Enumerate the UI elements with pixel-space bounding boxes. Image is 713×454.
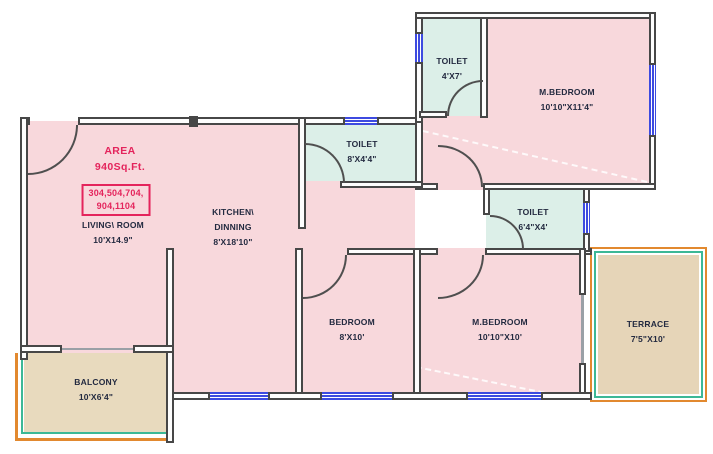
wall-segment: [133, 345, 174, 353]
wall-segment: [347, 248, 417, 255]
wall-segment: [268, 392, 322, 400]
window-marker: [210, 392, 268, 400]
room-name: KITCHEN\: [212, 205, 254, 220]
room-label-terrace: TERRACE 7'5"X10': [627, 317, 670, 347]
room-label-bedroom: BEDROOM 8'X10': [329, 315, 375, 345]
wall-segment: [483, 183, 656, 190]
room-dims: 8'X18'10": [212, 235, 254, 250]
balcony-rail-teal-bottom: [21, 432, 168, 434]
balcony-door-slider: [62, 348, 133, 350]
room-name: TOILET: [346, 137, 377, 152]
terrace-door-slider: [581, 295, 584, 363]
unit-numbers-line2: 904,1104: [89, 200, 144, 213]
wall-segment: [415, 12, 656, 19]
room-dims: 10'10"X10': [472, 330, 528, 345]
room-name: DINNING: [212, 220, 254, 235]
room-name: TOILET: [436, 54, 467, 69]
room-name: M.BEDROOM: [472, 315, 528, 330]
window-marker: [468, 392, 541, 400]
wall-segment: [419, 111, 447, 118]
room-dims: 10'X14.9": [82, 233, 144, 248]
balcony-rail-orange-bottom: [15, 438, 172, 441]
wall-segment: [541, 392, 592, 400]
column-marker: [189, 116, 198, 127]
room-name: BALCONY: [74, 375, 117, 390]
room-name: BEDROOM: [329, 315, 375, 330]
window-marker: [322, 392, 392, 400]
room-dims: 10'10"X11'4": [539, 100, 595, 115]
wall-segment: [649, 135, 656, 190]
room-label-mbedroom-top: M.BEDROOM 10'10"X11'4": [539, 85, 595, 115]
wall-segment: [20, 345, 62, 353]
wall-segment: [483, 188, 490, 215]
wall-segment: [340, 181, 423, 188]
room-name: LIVING\ ROOM: [82, 218, 144, 233]
room-dims: 10'X6'4": [74, 390, 117, 405]
wall-segment: [583, 188, 590, 203]
unit-numbers-line1: 304,504,704,: [89, 187, 144, 200]
wall-segment: [579, 248, 586, 295]
window-marker: [415, 34, 423, 62]
room-dims: 8'X4'4": [346, 152, 377, 167]
wall-segment: [485, 248, 592, 255]
window-marker: [649, 65, 656, 135]
room-name: TOILET: [517, 205, 548, 220]
room-dims: 8'X10': [329, 330, 375, 345]
area-title-text: AREA: [95, 143, 145, 159]
room-dims: 7'5"X10': [627, 332, 670, 347]
room-label-balcony: BALCONY 10'X6'4": [74, 375, 117, 405]
wall-segment: [392, 392, 468, 400]
wall-segment: [415, 121, 423, 187]
wall-segment: [649, 12, 656, 65]
room-label-living: LIVING\ ROOM 10'X14.9": [82, 218, 144, 248]
wall-segment: [20, 117, 28, 360]
area-value-text: 940Sq.Ft.: [95, 159, 145, 175]
area-title: AREA 940Sq.Ft.: [95, 143, 145, 175]
room-dims: 6'4"X4': [517, 220, 548, 235]
room-name: M.BEDROOM: [539, 85, 595, 100]
window-marker: [345, 117, 377, 125]
room-label-toilet-mid: TOILET 8'X4'4": [346, 137, 377, 167]
room-label-toilet-small: TOILET 6'4"X4': [517, 205, 548, 235]
balcony-rail-teal-left: [21, 356, 23, 434]
room-label-mbedroom-bottom: M.BEDROOM 10'10"X10': [472, 315, 528, 345]
room-dims: 4'X7': [436, 69, 467, 84]
room-label-kitchen: KITCHEN\ DINNING 8'X18'10": [212, 205, 254, 250]
unit-numbers-box: 304,504,704, 904,1104: [82, 184, 151, 216]
room-label-toilet-top: TOILET 4'X7': [436, 54, 467, 84]
wall-segment: [413, 248, 421, 399]
window-marker: [583, 203, 590, 233]
floor-plan: AREA 940Sq.Ft. 304,504,704, 904,1104 LIV…: [0, 0, 713, 454]
balcony-rail-orange-left: [15, 353, 18, 441]
wall-segment: [295, 248, 303, 399]
room-name: TERRACE: [627, 317, 670, 332]
